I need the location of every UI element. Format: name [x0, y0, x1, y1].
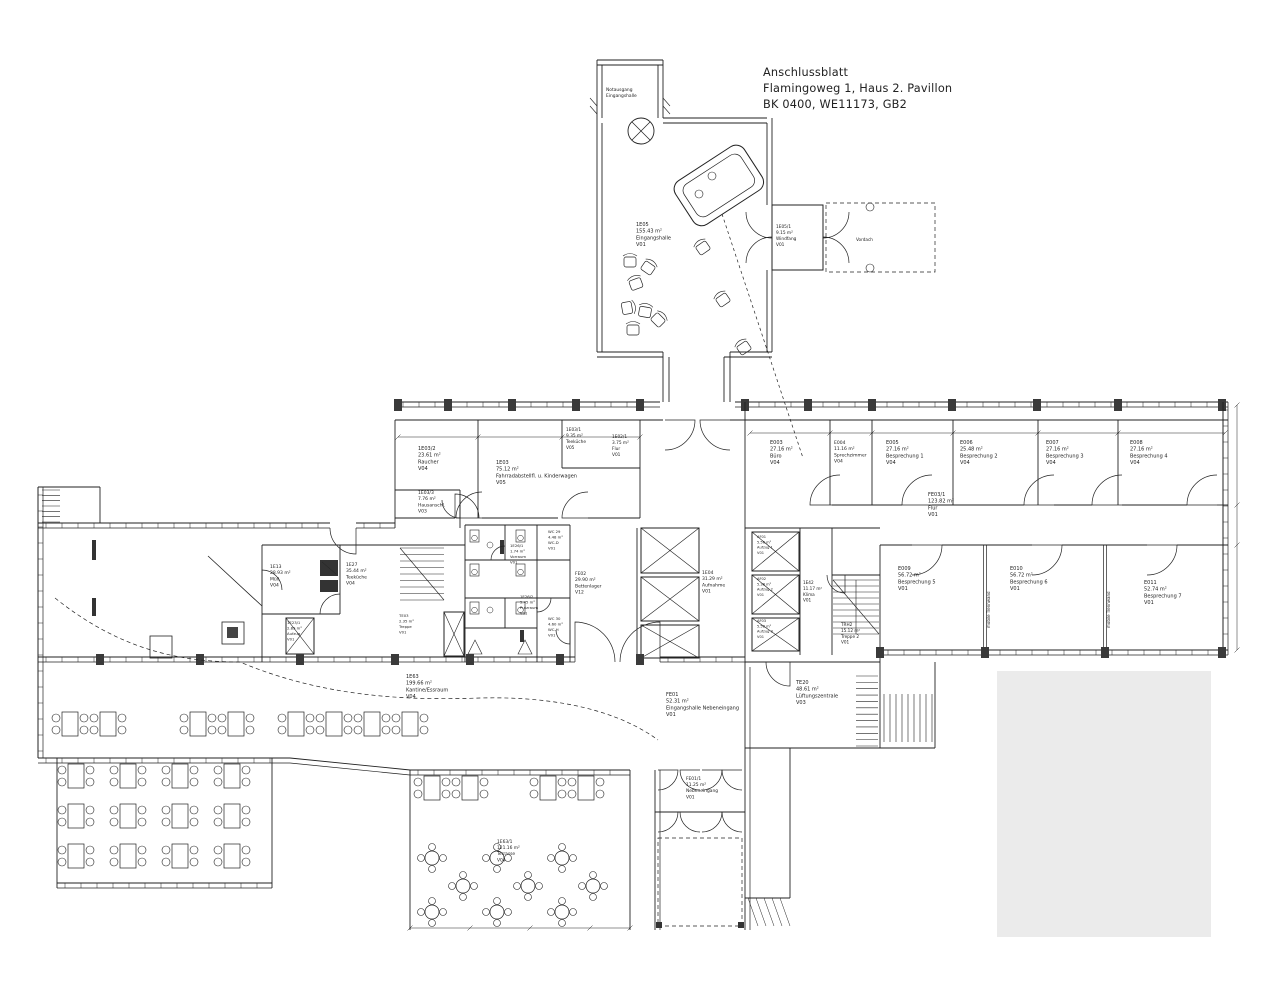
room-label-te42-id: 1E42 [803, 580, 814, 585]
room-label-e05-area: 155.43 m² [636, 229, 662, 235]
room-label-e03_2-code: V04 [418, 466, 428, 472]
room-label-e004-id: E004 [834, 440, 846, 446]
room-label-e05-name: Eingangshalle [636, 235, 671, 241]
room-label-trh2-id: TRH2 [840, 622, 853, 627]
room-label-e005-code: V04 [886, 460, 896, 466]
room-label-fe02-code: V12 [575, 590, 584, 596]
room-label-e010-code: V01 [1010, 586, 1020, 592]
room-label-e011-name: Besprechung 7 [1144, 593, 1182, 599]
room-label-fe02-name: Bettenlager [575, 583, 602, 589]
room-label-e027-name: Teeküche [345, 574, 367, 580]
room-label-fe02-area: 29.90 m² [575, 577, 596, 583]
room-label-e063-code: V04 [406, 694, 416, 700]
exit-label-1: Notausgang [606, 87, 633, 93]
room-label-af01-id: AF01 [757, 535, 766, 539]
room-label-e003-id: E003 [770, 440, 783, 446]
room-label-e03_2-area: 23.61 m² [418, 453, 441, 459]
room-label-e007-area: 27.16 m² [1046, 447, 1069, 453]
room-label-e05-id: 1E05 [636, 222, 649, 228]
room-label-af03-name: Aufzug 3 [757, 630, 773, 634]
room-label-e063-id: 1E63 [406, 674, 419, 680]
room-label-fe03_1-id: FE03/1 [928, 492, 945, 498]
room-label-te42-name: Klima [803, 592, 815, 597]
room-label-vorraum-id: 1E26/1 [510, 543, 524, 548]
room-label-fe01-name: Eingangshalle Nebeneingang [666, 705, 739, 711]
title-line3: BK 0400, WE11173, GB2 [763, 98, 907, 111]
room-label-e008-name: Besprechung 4 [1130, 453, 1168, 459]
room-label-e023_1-area: 2.89 m² [287, 626, 302, 631]
room-label-e003-code: V04 [770, 460, 780, 466]
room-label-e02_1-code: V01 [612, 452, 621, 458]
room-label-wc_h-area: 4.60 m² [548, 622, 563, 627]
room-label-putzraum-name: Putzraum [520, 605, 538, 610]
room-label-e006-id: E006 [960, 440, 973, 446]
room-label-e011-area: 52.74 m² [1144, 587, 1167, 593]
room-label-af01-area: 5.56 m² [757, 540, 772, 544]
room-label-fe04-id: 1E04 [702, 570, 714, 576]
room-label-e006-name: Besprechung 2 [960, 453, 998, 459]
exit-label-2: Eingangshalle [606, 93, 637, 99]
empty-placeholder [997, 671, 1211, 937]
partition-label-1: mobile Trennwand [986, 591, 991, 628]
room-label-wc_d-code: V01 [548, 546, 556, 551]
room-label-e05_1-name: Windfang [776, 236, 797, 242]
room-label-e05_1-id: 1E05/1 [776, 224, 791, 230]
room-label-e011-id: E011 [1144, 580, 1157, 586]
room-label-e007-name: Besprechung 3 [1046, 453, 1084, 459]
room-label-fe01-id: FE01 [666, 692, 678, 698]
room-label-e02_1-area: 3.75 m² [612, 440, 629, 446]
room-label-e005-id: E005 [886, 440, 899, 446]
room-label-e03_3-area: 7.76 m² [418, 496, 436, 502]
room-label-e006-code: V04 [960, 460, 970, 466]
room-label-e05_1-code: V01 [776, 242, 785, 248]
room-label-fe03_1-code: V01 [928, 512, 938, 518]
room-label-te20-name: Lüftungszentrale [796, 693, 838, 699]
room-label-fe03_1-area: 123.82 m² [928, 499, 954, 505]
room-label-e023_1-name: Aufzug [287, 631, 301, 636]
room-label-e013-area: 28.93 m² [270, 570, 291, 576]
room-label-putzraum-code: V01 [520, 611, 528, 616]
room-label-trh2-code: V01 [841, 640, 850, 645]
room-label-af03-code: V01 [757, 635, 764, 639]
room-label-af02-name: Aufzug 2 [757, 588, 773, 592]
room-label-e063_1-area: 121.16 m² [497, 845, 520, 851]
room-label-e003-area: 27.16 m² [770, 447, 793, 453]
room-label-fe01_1-name: Nebeneingang [686, 788, 718, 794]
partition-label-2: mobile Trennwand [1106, 591, 1111, 628]
room-label-e010-name: Besprechung 6 [1010, 579, 1048, 585]
room-label-af03-id: AF03 [757, 619, 766, 623]
room-label-fe01-area: 52.31 m² [666, 699, 689, 705]
room-label-e023_1-code: V01 [287, 637, 295, 642]
room-label-af02-area: 5.38 m² [757, 582, 772, 586]
room-label-e063_1-name: Terrasse [496, 851, 515, 857]
room-label-te03-name: Treppe [398, 624, 412, 629]
room-label-e007-id: E007 [1046, 440, 1059, 446]
room-label-e010-id: E010 [1010, 566, 1023, 572]
room-label-e013-name: Müll [270, 576, 279, 582]
room-label-te42-area: 11.17 m² [803, 586, 822, 591]
room-label-vorraum-name: Vorraum [510, 554, 526, 559]
room-label-e007-code: V04 [1046, 460, 1056, 466]
room-label-e023_1-id: 1E23/1 [287, 620, 301, 625]
room-label-e03_1-code: V05 [566, 445, 575, 451]
room-label-e02_1-id: 1E02/1 [612, 434, 627, 440]
room-label-e063-area: 199.66 m² [406, 681, 432, 687]
room-label-fe01_1-id: FE01/1 [686, 776, 701, 782]
room-label-e003-name: Büro [770, 453, 782, 459]
room-label-e027-area: 35.44 m² [346, 568, 367, 574]
room-label-af01-name: Aufzug 1 [757, 546, 773, 550]
room-label-e005-name: Besprechung 1 [886, 453, 924, 459]
room-label-fe04-code: V01 [702, 589, 711, 595]
room-label-wc_h-code: V01 [548, 633, 556, 638]
room-label-e063_1-code: V04 [497, 857, 506, 863]
room-label-e013-id: 1E13 [270, 564, 282, 570]
room-label-te03-code: V01 [399, 630, 407, 635]
room-label-e008-id: E008 [1130, 440, 1143, 446]
room-label-af03-area: 5.58 m² [757, 624, 772, 628]
room-label-e063_1-id: 1E63/1 [497, 839, 513, 845]
room-label-e03_1-area: 9.35 m² [566, 433, 583, 439]
room-label-e013-code: V04 [270, 583, 279, 589]
room-label-fe04-area: 31.29 m² [702, 576, 723, 582]
room-label-af02-code: V01 [757, 593, 764, 597]
room-label-e03_1-id: 1E03/1 [566, 427, 581, 433]
title-line1: Anschlussblatt [763, 66, 848, 79]
room-label-putzraum-id: 1E26/2 [520, 594, 534, 599]
room-label-e03_3-id: 1E03/3 [418, 490, 434, 496]
room-label-e006-area: 25.48 m² [960, 447, 983, 453]
floor-plan-svg: 1E05155.43 m²EingangshalleV011E05/19.15 … [0, 0, 1278, 987]
room-label-wc_h-id: WC 30 [548, 616, 561, 621]
room-label-te03-id: TE03 [398, 613, 409, 618]
room-label-e005-area: 27.16 m² [886, 447, 909, 453]
title-block: Anschlussblatt Flamingoweg 1, Haus 2. Pa… [763, 66, 952, 111]
room-label-te20-code: V03 [796, 700, 806, 706]
room-label-wc_d-area: 4.48 m² [548, 535, 563, 540]
room-label-e05_1-area: 9.15 m² [776, 230, 793, 236]
room-label-trh2-area: 15.12 m² [841, 628, 860, 633]
room-label-e03-code: V05 [496, 480, 506, 486]
room-label-af01-code: V01 [757, 551, 764, 555]
room-label-fe01_1-area: 11.25 m² [686, 782, 706, 788]
room-label-e03_3-name: Hausanschl. [418, 502, 445, 508]
floor-plan-canvas: 1E05155.43 m²EingangshalleV011E05/19.15 … [0, 0, 1278, 987]
room-label-e004-code: V04 [834, 459, 843, 465]
plan-geometry [38, 60, 1240, 937]
room-label-wc_d-id: WC 29 [548, 529, 561, 534]
room-label-putzraum-area: 5.45 m² [520, 600, 535, 605]
room-label-e009-code: V01 [898, 586, 908, 592]
room-label-te42-code: V01 [803, 598, 812, 603]
room-label-e03-area: 75.12 m² [496, 467, 519, 473]
room-label-e03_2-name: Raucher [418, 459, 440, 465]
room-label-e027-id: 1E27 [346, 562, 358, 568]
room-label-te20-area: 48.61 m² [796, 687, 819, 693]
room-label-fe01_1-code: V01 [686, 794, 695, 800]
room-label-e03_1-name: Teeküche [565, 439, 586, 445]
room-label-te20-id: TE20 [795, 680, 809, 686]
room-label-fe02-id: FE02 [575, 571, 586, 577]
room-label-fe01-code: V01 [666, 712, 676, 718]
room-label-e004-area: 11.16 m² [834, 446, 855, 452]
room-label-e008-code: V04 [1130, 460, 1140, 466]
room-label-fe04-name: Aufnahme [702, 582, 725, 588]
room-label-e03_2-id: 1E03/2 [418, 446, 436, 452]
room-label-trh2-name: Treppe 2 [840, 634, 859, 639]
room-label-vorraum-code: V01 [510, 560, 518, 565]
room-label-e009-name: Besprechung 5 [898, 579, 936, 585]
room-label-e05-code: V01 [636, 242, 646, 248]
room-label-e010-area: 56.72 m² [1010, 573, 1033, 579]
room-label-e008-area: 27.16 m² [1130, 447, 1153, 453]
room-label-vorraum-area: 1.74 m² [510, 549, 525, 554]
room-label-wc_h-name: WC-H [548, 627, 559, 632]
canopy-label: Vordach [856, 237, 873, 242]
room-label-e03-name: Fahrradabstellfl. u. Kinderwagen [496, 473, 577, 479]
room-label-af02-id: AF02 [757, 577, 766, 581]
title-line2: Flamingoweg 1, Haus 2. Pavillon [763, 82, 952, 95]
room-label-e009-id: E009 [898, 566, 911, 572]
room-label-wc_d-name: WC-D [548, 540, 559, 545]
room-label-te03-area: 2.35 m² [399, 619, 414, 624]
room-label-e03_3-code: V03 [418, 509, 427, 515]
room-label-e004-name: Sprechzimmer [834, 452, 867, 458]
room-label-e02_1-name: Flur [612, 446, 620, 452]
room-label-e063-name: Kantine/Essraum [406, 687, 448, 693]
room-label-e027-code: V04 [346, 581, 355, 587]
room-label-e011-code: V01 [1144, 600, 1154, 606]
room-label-fe03_1-name: Flur [928, 505, 938, 511]
room-label-e03-id: 1E03 [496, 460, 509, 466]
room-label-e009-area: 56.72 m² [898, 573, 921, 579]
